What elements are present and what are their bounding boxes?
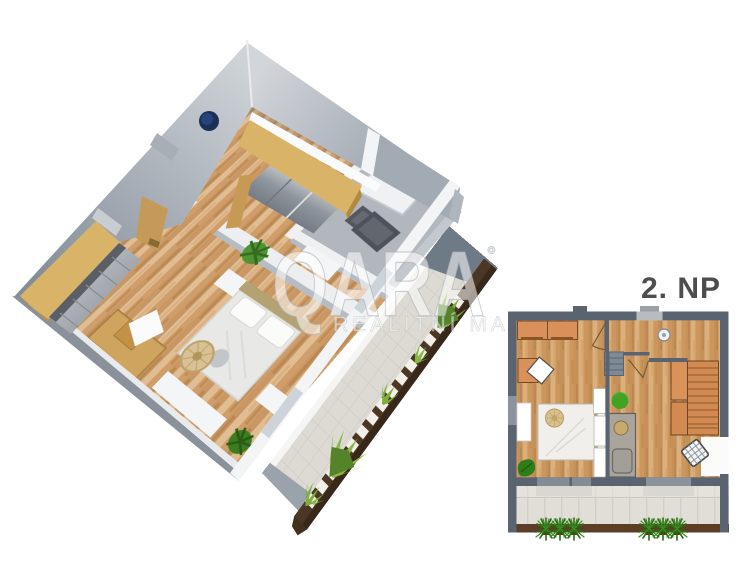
svg-text:2. NP: 2. NP xyxy=(641,272,721,305)
